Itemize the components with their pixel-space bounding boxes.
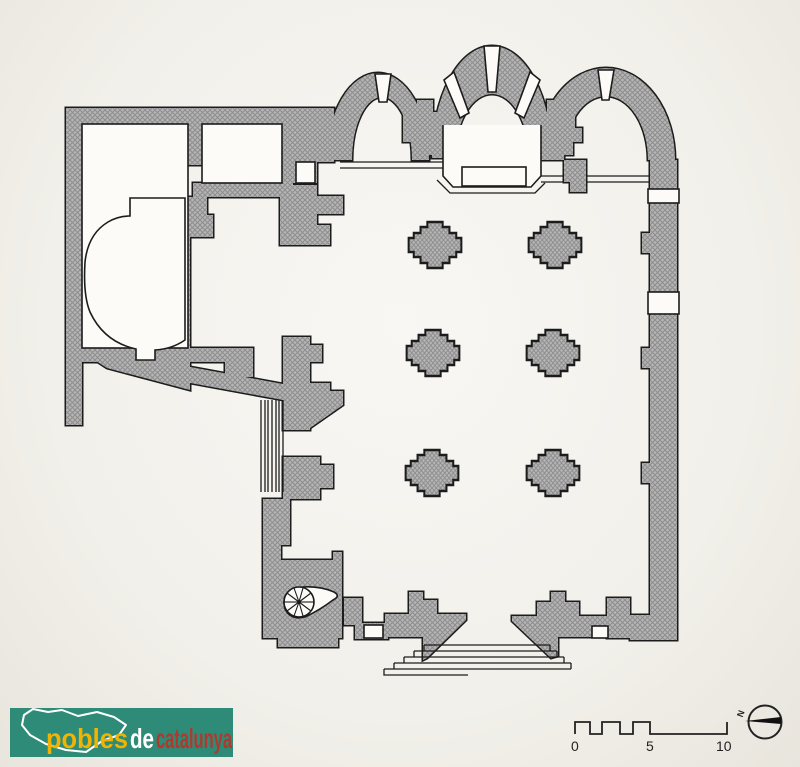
north-compass: N [735,706,782,739]
scale-bar: 0 5 10 [571,722,732,754]
logo-pobles-de-catalunya: pobles de catalunya [10,708,233,757]
nave-pillars [406,222,582,496]
pillar [527,450,580,496]
east-wall-opening-south [648,292,679,314]
compass-needle [745,717,781,724]
logo-word-pobles: pobles [46,723,128,754]
tower-doorway [364,625,383,638]
scale-label-10: 10 [716,738,732,754]
scale-label-0: 0 [571,738,579,754]
pillar [407,330,460,376]
pillar [409,222,462,268]
doorway-north [296,162,315,183]
logo-word-de: de [130,723,154,754]
room-north [202,124,282,183]
floor-plan-svg: 0 5 10 N pobles de catalunya [0,0,800,767]
pillar [529,222,582,268]
south-wall-doorway [592,626,608,638]
west-stairs [261,400,283,492]
scale-label-5: 5 [646,738,654,754]
north-label: N [735,709,747,719]
pillar [527,330,580,376]
pillar [406,450,459,496]
logo-word-catalunya: catalunya [156,723,232,754]
altar [462,167,526,186]
scanned-floor-plan-page: 0 5 10 N pobles de catalunya [0,0,800,767]
east-wall-opening-north [648,189,679,203]
